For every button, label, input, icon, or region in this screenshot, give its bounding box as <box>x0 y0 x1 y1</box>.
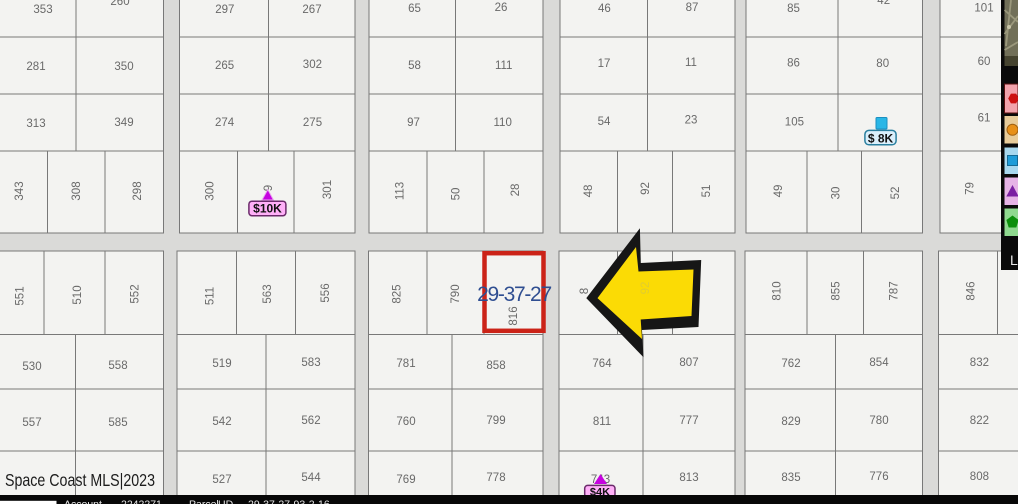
svg-text:556: 556 <box>320 283 332 302</box>
svg-text:562: 562 <box>301 415 320 427</box>
svg-text:308: 308 <box>71 181 83 200</box>
svg-text:29-37-27-93-2-16: 29-37-27-93-2-16 <box>248 499 330 504</box>
svg-text:51: 51 <box>701 185 713 198</box>
svg-text:54: 54 <box>598 116 611 128</box>
svg-text:50: 50 <box>451 188 463 201</box>
svg-text:583: 583 <box>301 357 320 369</box>
svg-text:855: 855 <box>831 281 843 300</box>
svg-text:UD: UD <box>218 499 234 504</box>
svg-text:L: L <box>1010 252 1018 268</box>
svg-text:787: 787 <box>889 281 901 300</box>
svg-text:97: 97 <box>407 117 420 129</box>
svg-text:48: 48 <box>583 185 595 198</box>
svg-text:80: 80 <box>876 58 889 70</box>
svg-text:301: 301 <box>322 180 334 199</box>
svg-text:9: 9 <box>263 185 275 191</box>
svg-text:353: 353 <box>33 4 52 16</box>
svg-text:92: 92 <box>640 182 652 195</box>
svg-text:313: 313 <box>26 118 45 130</box>
svg-text:26: 26 <box>495 2 508 14</box>
svg-text:807: 807 <box>679 357 698 369</box>
svg-text:17: 17 <box>598 58 611 70</box>
svg-text:2242271: 2242271 <box>121 499 162 504</box>
svg-text:260: 260 <box>110 0 129 8</box>
svg-text:23: 23 <box>685 115 698 127</box>
svg-text:110: 110 <box>494 117 512 129</box>
svg-text:297: 297 <box>215 4 234 16</box>
svg-text:343: 343 <box>14 181 26 200</box>
svg-text:30: 30 <box>831 187 843 200</box>
svg-text:65: 65 <box>408 3 421 15</box>
svg-text:92: 92 <box>640 282 652 295</box>
svg-text:777: 777 <box>679 415 698 427</box>
svg-text:300: 300 <box>204 181 216 200</box>
svg-text:832: 832 <box>970 357 989 369</box>
svg-text:11: 11 <box>685 57 697 69</box>
svg-text:558: 558 <box>108 360 127 372</box>
svg-text:298: 298 <box>132 181 144 200</box>
svg-text:542: 542 <box>212 416 231 428</box>
svg-text:808: 808 <box>970 471 989 483</box>
svg-text:563: 563 <box>262 284 274 303</box>
svg-text:511: 511 <box>205 287 217 305</box>
svg-text:530: 530 <box>22 361 41 373</box>
svg-text:810: 810 <box>771 281 783 300</box>
svg-text:49: 49 <box>773 185 785 198</box>
svg-text:778: 778 <box>486 472 505 484</box>
svg-text:113: 113 <box>395 182 407 200</box>
svg-text:42: 42 <box>877 0 890 7</box>
svg-text:825: 825 <box>392 284 404 303</box>
svg-text:58: 58 <box>408 60 421 72</box>
svg-text:350: 350 <box>114 61 133 73</box>
svg-text:28: 28 <box>510 184 522 197</box>
svg-text:557: 557 <box>22 417 41 429</box>
svg-text:46: 46 <box>598 3 611 15</box>
svg-text:813: 813 <box>679 472 698 484</box>
svg-text:846: 846 <box>966 281 978 300</box>
svg-text:760: 760 <box>396 416 415 428</box>
svg-text:79: 79 <box>965 182 977 195</box>
svg-text:858: 858 <box>486 360 505 372</box>
svg-text:111: 111 <box>495 60 512 72</box>
svg-text:274: 274 <box>215 117 235 129</box>
svg-text:87: 87 <box>686 2 699 14</box>
svg-text:105: 105 <box>785 117 804 129</box>
svg-text:762: 762 <box>781 358 800 370</box>
svg-text:790: 790 <box>450 284 462 303</box>
svg-text:Space Coast MLS|2023: Space Coast MLS|2023 <box>5 470 155 490</box>
svg-text:799: 799 <box>486 415 505 427</box>
svg-text:302: 302 <box>303 59 322 71</box>
svg-text:811: 811 <box>593 416 611 428</box>
svg-text:780: 780 <box>869 415 888 427</box>
svg-text:85: 85 <box>787 3 800 15</box>
svg-text:829: 829 <box>781 416 800 428</box>
svg-text:281: 281 <box>26 61 45 73</box>
svg-text:86: 86 <box>787 58 800 70</box>
svg-text:61: 61 <box>978 113 991 125</box>
svg-text:527: 527 <box>212 474 231 486</box>
svg-text:$10K: $10K <box>253 202 282 216</box>
svg-text:552: 552 <box>130 284 142 303</box>
svg-text:Account: Account <box>64 499 102 504</box>
svg-text:519: 519 <box>212 358 231 370</box>
svg-text:265: 265 <box>215 60 234 72</box>
svg-text:60: 60 <box>978 56 991 68</box>
svg-text:816: 816 <box>508 306 520 325</box>
svg-text:551: 551 <box>15 286 27 305</box>
svg-text:822: 822 <box>970 415 989 427</box>
svg-text:52: 52 <box>890 187 902 200</box>
svg-text:8: 8 <box>579 288 591 294</box>
svg-text:764: 764 <box>592 358 612 370</box>
svg-text:275: 275 <box>303 117 322 129</box>
svg-text:Parcel: Parcel <box>189 499 219 504</box>
svg-text:101: 101 <box>974 3 993 15</box>
svg-text:349: 349 <box>114 117 133 129</box>
svg-text:835: 835 <box>781 472 800 484</box>
svg-text:29-37-27: 29-37-27 <box>477 283 551 306</box>
svg-text:267: 267 <box>302 4 321 16</box>
svg-text:544: 544 <box>301 472 321 484</box>
svg-text:$ 8K: $ 8K <box>868 132 894 146</box>
svg-text:854: 854 <box>869 357 889 369</box>
svg-text:781: 781 <box>396 358 415 370</box>
svg-text:585: 585 <box>108 417 127 429</box>
svg-text:776: 776 <box>869 471 888 483</box>
svg-text:510: 510 <box>72 285 84 304</box>
svg-text:769: 769 <box>396 474 415 486</box>
